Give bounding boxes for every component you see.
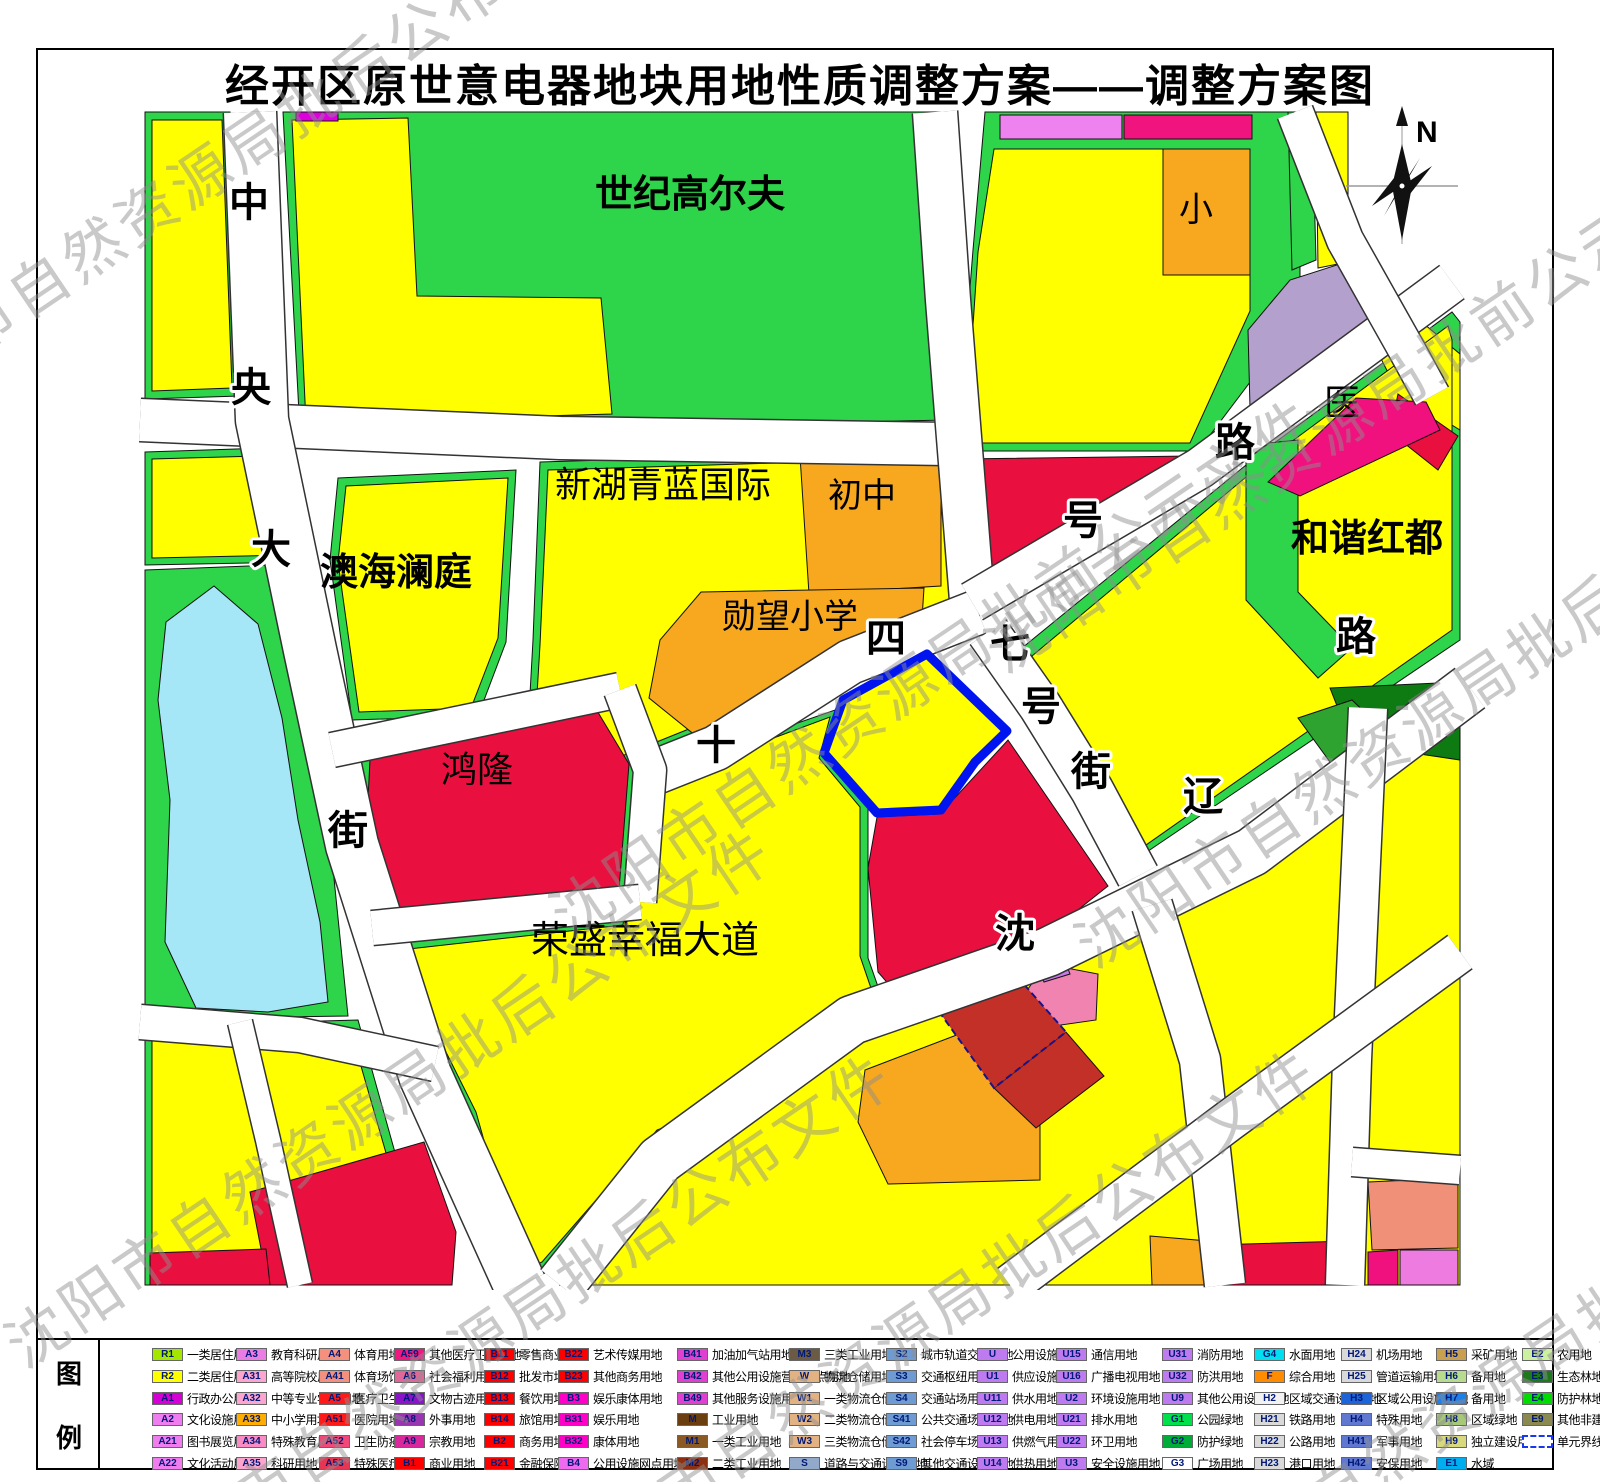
legend-grid: R1一类居住用地R2二类居住用地A1行政办公用地A2文化设施用地A21图书展览用… [102, 1340, 1554, 1468]
map-label-街: 街 [1070, 749, 1111, 794]
legend-item-B22: B22艺术传媒用地 [558, 1346, 662, 1362]
legend-label: 加油加气站用地 [712, 1346, 793, 1363]
legend-swatch-R2: R2 [152, 1370, 183, 1383]
legend-label: 三类工业用地 [824, 1346, 893, 1363]
legend-item-H8: H8区域绿地 [1436, 1411, 1517, 1427]
legend-item-E9: E9其他非建设用地 [1522, 1411, 1600, 1427]
legend-swatch-S3: S3 [886, 1370, 917, 1383]
legend-swatch-S4: S4 [886, 1392, 917, 1405]
legend-item-M2: M2二类工业用地 [677, 1455, 781, 1471]
legend-label: 消防用地 [1197, 1346, 1243, 1363]
legend-swatch-U32: U32 [1162, 1370, 1193, 1383]
legend-code: U14 [978, 1458, 1007, 1470]
legend-swatch-H7: H7 [1436, 1392, 1467, 1405]
legend-swatch-S42: S42 [886, 1435, 917, 1448]
legend-label: 娱乐用地 [593, 1411, 639, 1428]
legend-label: 一类工业用地 [712, 1433, 781, 1450]
legend-code: H7 [1437, 1393, 1466, 1405]
legend-code: M3 [790, 1349, 819, 1361]
road-br-d [1352, 1162, 1460, 1170]
legend-swatch-H24: H24 [1341, 1348, 1372, 1361]
legend-char-li: 例 [38, 1418, 100, 1455]
legend-swatch-E4: E4 [1522, 1392, 1553, 1405]
legend-swatch-R1: R1 [152, 1348, 183, 1361]
legend-code: H21 [1255, 1414, 1284, 1426]
legend-item-S4: S4交通站场用地 [886, 1390, 990, 1406]
legend-label: 特殊用地 [1376, 1411, 1422, 1428]
legend-label: 安全设施用地 [1091, 1455, 1160, 1472]
legend-swatch-H5: H5 [1436, 1348, 1467, 1361]
legend-code: U9 [1163, 1393, 1192, 1405]
legend-label: 水域 [1471, 1455, 1494, 1472]
legend-item-单元界线: 单元界线 [1522, 1433, 1600, 1449]
legend-label: 综合用地 [1289, 1368, 1335, 1385]
legend-swatch-A6: A6 [394, 1370, 425, 1383]
legend-code: E2 [1523, 1349, 1552, 1361]
legend-code: S9 [887, 1458, 916, 1470]
legend-swatch-A3: A3 [236, 1348, 267, 1361]
map-label-辽: 辽 [1183, 774, 1223, 819]
legend-swatch-U21: U21 [1056, 1413, 1087, 1426]
legend-code: B4 [559, 1458, 588, 1470]
legend-item-U14: U14供热用地 [977, 1455, 1058, 1471]
legend-item-B13: B13餐饮用地 [484, 1390, 565, 1406]
legend-label: 港口用地 [1289, 1455, 1335, 1472]
map-label-和谐红都: 和谐红都 [1291, 518, 1443, 560]
legend-code: U2 [1057, 1393, 1086, 1405]
legend-code: H22 [1255, 1436, 1284, 1448]
legend-item-B49: B49其他服务设施用地 [677, 1390, 804, 1406]
legend-swatch-H22: H22 [1254, 1435, 1285, 1448]
legend-label: 机场用地 [1376, 1346, 1422, 1363]
compass-center [1399, 183, 1405, 189]
legend-code: A7 [395, 1393, 424, 1405]
legend-code: H5 [1437, 1349, 1466, 1361]
legend-swatch-A5: A5 [319, 1392, 350, 1405]
legend-label: 单元界线 [1557, 1433, 1600, 1450]
legend-code: B1 [395, 1458, 424, 1470]
legend-code: U11 [978, 1393, 1007, 1405]
legend-swatch-H3: H3 [1341, 1392, 1372, 1405]
legend-label: 艺术传媒用地 [593, 1346, 662, 1363]
legend-swatch-U14: U14 [977, 1457, 1008, 1470]
legend-code: G1 [1163, 1414, 1192, 1426]
legend-label: 环境设施用地 [1091, 1390, 1160, 1407]
parcel-middle-school [800, 452, 941, 594]
map-label-路: 路 [1336, 614, 1377, 659]
legend-label: 水面用地 [1289, 1346, 1335, 1363]
legend-code: S41 [887, 1414, 916, 1426]
legend-code: B32 [559, 1436, 588, 1448]
legend-swatch-S: S [789, 1457, 820, 1470]
parcel-topleft [152, 120, 232, 391]
legend-item-A35: A35科研用地 [236, 1455, 317, 1471]
legend-code: A9 [395, 1436, 424, 1448]
legend-label: 铁路用地 [1289, 1411, 1335, 1428]
legend-swatch-H21: H21 [1254, 1413, 1285, 1426]
map-label-七: 七 [990, 622, 1030, 667]
legend-item-H24: H24机场用地 [1341, 1346, 1422, 1362]
legend-code: A22 [153, 1458, 182, 1470]
legend-label: 广场用地 [1197, 1455, 1243, 1472]
legend-swatch-H23: H23 [1254, 1457, 1285, 1470]
legend-item-A9: A9宗教用地 [394, 1433, 475, 1449]
legend-swatch-S41: S41 [886, 1413, 917, 1426]
legend-swatch-A4: A4 [319, 1348, 350, 1361]
legend-code: B12 [485, 1371, 514, 1383]
legend-item-H41: H41军事用地 [1341, 1433, 1422, 1449]
legend-code: A34 [237, 1436, 266, 1448]
legend-code: R1 [153, 1349, 182, 1361]
legend-swatch-B11: B11 [484, 1348, 515, 1361]
legend-swatch-A2: A2 [152, 1413, 183, 1426]
legend-item-A4: A4体育用地 [319, 1346, 400, 1362]
legend-code: B42 [678, 1371, 707, 1383]
legend-code: A31 [237, 1371, 266, 1383]
map-label-大: 大 [251, 527, 291, 572]
legend-swatch-B32: B32 [558, 1435, 589, 1448]
legend-swatch-B12: B12 [484, 1370, 515, 1383]
legend-label: 工业用地 [712, 1411, 758, 1428]
legend-code: R2 [153, 1371, 182, 1383]
parcel-red-bl2 [150, 1249, 270, 1285]
legend-swatch-S2: S2 [886, 1348, 917, 1361]
legend-swatch-W1: W1 [789, 1392, 820, 1405]
legend-code: B41 [678, 1349, 707, 1361]
legend-label: 公路用地 [1289, 1433, 1335, 1450]
legend-label: 娱乐康体用地 [593, 1390, 662, 1407]
legend-item-H23: H23港口用地 [1254, 1455, 1335, 1471]
legend-label: 防洪用地 [1197, 1368, 1243, 1385]
legend-code: U12 [978, 1414, 1007, 1426]
legend-code: U15 [1057, 1349, 1086, 1361]
plan-page: 经开区原世意电器地块用地性质调整方案——调整方案图 N 世纪高尔夫新湖青蓝国际初… [0, 0, 1600, 1482]
legend-code: B49 [678, 1393, 707, 1405]
legend-swatch-A52: A52 [319, 1435, 350, 1448]
legend-item-A8: A8外事用地 [394, 1411, 475, 1427]
legend-code: W1 [790, 1393, 819, 1405]
legend-item-H5: H5采矿用地 [1436, 1346, 1517, 1362]
legend-code: S3 [887, 1371, 916, 1383]
legend-item-S3: S3交通枢纽用地 [886, 1368, 990, 1384]
legend-label: 备用地 [1471, 1390, 1506, 1407]
legend-swatch-B1: B1 [394, 1457, 425, 1470]
legend-code: S [790, 1458, 819, 1470]
legend-label: 备用地 [1471, 1368, 1506, 1385]
legend-swatch-M: M [677, 1413, 708, 1426]
legend-code: H41 [1342, 1436, 1371, 1448]
legend-code: S2 [887, 1349, 916, 1361]
map-label-号: 号 [1021, 684, 1061, 729]
legend-code: A2 [153, 1414, 182, 1426]
legend-code: A53 [320, 1458, 349, 1470]
legend-code: W2 [790, 1414, 819, 1426]
legend-item-G4: G4水面用地 [1254, 1346, 1335, 1362]
legend-label: 安保用地 [1376, 1455, 1422, 1472]
legend-label: 广播电视用地 [1091, 1368, 1160, 1385]
legend-label: 二类工业用地 [712, 1455, 781, 1472]
map-label-初中: 初中 [828, 477, 896, 515]
map-label-路: 路 [1215, 420, 1256, 465]
legend-swatch-W3: W3 [789, 1435, 820, 1448]
legend-item-U15: U15通信用地 [1056, 1346, 1137, 1362]
legend-item-E3: E3生态林地 [1522, 1368, 1600, 1384]
legend-code: U3 [1057, 1458, 1086, 1470]
legend-swatch-M1: M1 [677, 1435, 708, 1448]
legend-swatch-H8: H8 [1436, 1413, 1467, 1426]
legend-item-B32: B32康体用地 [558, 1433, 639, 1449]
legend-item-E1: E1水域 [1436, 1455, 1494, 1471]
legend-code: A51 [320, 1414, 349, 1426]
legend-item-U2: U2环境设施用地 [1056, 1390, 1160, 1406]
parcel-salmon [1368, 1178, 1458, 1250]
legend-code: G3 [1163, 1458, 1192, 1470]
map-label-荣盛幸福大道: 荣盛幸福大道 [531, 920, 759, 962]
map-label-四: 四 [866, 616, 906, 661]
legend-swatch-B21: B21 [484, 1457, 515, 1470]
map-label-街: 街 [327, 808, 368, 853]
legend-item-U16: U16广播电视用地 [1056, 1368, 1160, 1384]
legend-code: B13 [485, 1393, 514, 1405]
legend-code: B21 [485, 1458, 514, 1470]
legend-item-B41: B41加油加气站用地 [677, 1346, 793, 1362]
legend-label: 供电用地 [1012, 1411, 1058, 1428]
legend-code: A21 [153, 1436, 182, 1448]
legend-item-M3: M3三类工业用地 [789, 1346, 893, 1362]
legend-swatch-U11: U11 [977, 1392, 1008, 1405]
north-label: N [1416, 116, 1438, 149]
legend-swatch-A8: A8 [394, 1413, 425, 1426]
legend-label: 供水用地 [1012, 1390, 1058, 1407]
legend-swatch-U13: U13 [977, 1435, 1008, 1448]
legend-swatch-A53: A53 [319, 1457, 350, 1470]
legend-code: M1 [678, 1436, 707, 1448]
legend-swatch-U16: U16 [1056, 1370, 1087, 1383]
legend-swatch-G2: G2 [1162, 1435, 1193, 1448]
legend-swatch-A21: A21 [152, 1435, 183, 1448]
legend-code: H6 [1437, 1371, 1466, 1383]
legend-code: B3 [559, 1393, 588, 1405]
legend-swatch-U9: U9 [1162, 1392, 1193, 1405]
map-label-沈: 沈 [995, 911, 1035, 956]
legend-code: A35 [237, 1458, 266, 1470]
legend-swatch-B2: B2 [484, 1435, 515, 1448]
legend-code: A5 [320, 1393, 349, 1405]
map-label-鸿隆: 鸿隆 [441, 750, 513, 790]
legend-swatch-E1: E1 [1436, 1457, 1467, 1470]
legend-code: A8 [395, 1414, 424, 1426]
legend-item-H4: H4特殊用地 [1341, 1411, 1422, 1427]
legend-label: 通信用地 [1091, 1346, 1137, 1363]
legend-swatch-B14: B14 [484, 1413, 515, 1426]
legend-label: 宗教用地 [429, 1433, 475, 1450]
legend-code: B23 [559, 1371, 588, 1383]
legend-swatch-B13: B13 [484, 1392, 515, 1405]
legend-label: 科研用地 [271, 1455, 317, 1472]
legend-swatch-B42: B42 [677, 1370, 708, 1383]
legend-code: S42 [887, 1436, 916, 1448]
legend-code: E9 [1523, 1414, 1552, 1426]
legend-swatch-U12: U12 [977, 1413, 1008, 1426]
legend-swatch-E2: E2 [1522, 1348, 1553, 1361]
legend-item-G1: G1公园绿地 [1162, 1411, 1243, 1427]
legend-swatch-W2: W2 [789, 1413, 820, 1426]
legend-side-label: 图 例 [38, 1340, 100, 1468]
strip-violet [1000, 115, 1122, 139]
legend-item-B23: B23其他商务用地 [558, 1368, 662, 1384]
legend-label: 物流仓储用地 [824, 1368, 893, 1385]
legend-code: B31 [559, 1414, 588, 1426]
legend-code: E4 [1523, 1393, 1552, 1405]
legend-label: 区域绿地 [1471, 1411, 1517, 1428]
legend-item-A6: A6社会福利用地 [394, 1368, 498, 1384]
legend-swatch-B23: B23 [558, 1370, 589, 1383]
legend-label: 排水用地 [1091, 1411, 1137, 1428]
page-title: 经开区原世意电器地块用地性质调整方案——调整方案图 [0, 50, 1600, 114]
legend-code: U22 [1057, 1436, 1086, 1448]
legend-code: G2 [1163, 1436, 1192, 1448]
parcel-aohai [338, 478, 508, 712]
legend-code: H23 [1255, 1458, 1284, 1470]
map-label-医: 医 [1324, 383, 1360, 423]
legend-label: 商业用地 [429, 1455, 475, 1472]
legend-item-W: W物流仓储用地 [789, 1368, 893, 1384]
legend-item-G2: G2防护绿地 [1162, 1433, 1243, 1449]
map-label-央: 央 [231, 365, 272, 410]
legend-code: A32 [237, 1393, 266, 1405]
legend-code: A59 [395, 1349, 424, 1361]
legend-code: H42 [1342, 1458, 1371, 1470]
map-label-号: 号 [1063, 498, 1103, 543]
legend-code: H2 [1255, 1393, 1284, 1405]
legend-code: A33 [237, 1414, 266, 1426]
legend-swatch-F: F [1254, 1370, 1285, 1383]
legend-code: U31 [1163, 1349, 1192, 1361]
legend-label: 军事用地 [1376, 1433, 1422, 1450]
legend-label: 生态林地 [1557, 1368, 1600, 1385]
legend-swatch-M2: M2 [677, 1457, 708, 1470]
legend-swatch-G4: G4 [1254, 1348, 1285, 1361]
legend-swatch-E3: E3 [1522, 1370, 1553, 1383]
legend-item-H22: H22公路用地 [1254, 1433, 1335, 1449]
legend-swatch-A33: A33 [236, 1413, 267, 1426]
legend-swatch-U1: U1 [977, 1370, 1008, 1383]
legend-code: U [978, 1349, 1007, 1361]
map-label-小: 小 [1179, 192, 1213, 229]
legend-item-U31: U31消防用地 [1162, 1346, 1243, 1362]
legend-code: B22 [559, 1349, 588, 1361]
legend-item-B4: B4公用设施网点用地 [558, 1455, 685, 1471]
legend-swatch-E9: E9 [1522, 1413, 1553, 1426]
legend-code: W3 [790, 1436, 819, 1448]
legend-swatch-U: U [977, 1348, 1008, 1361]
legend-swatch-S9: S9 [886, 1457, 917, 1470]
legend-swatch-A22: A22 [152, 1457, 183, 1470]
legend-item-E2: E2农用地 [1522, 1346, 1592, 1362]
legend-item-U22: U22环卫用地 [1056, 1433, 1137, 1449]
legend-code: A41 [320, 1371, 349, 1383]
legend-swatch-H2: H2 [1254, 1392, 1285, 1405]
legend-code: S4 [887, 1393, 916, 1405]
legend-item-B1: B1商业用地 [394, 1455, 475, 1471]
legend-code: G4 [1255, 1349, 1284, 1361]
legend-swatch-A9: A9 [394, 1435, 425, 1448]
legend-swatch-A34: A34 [236, 1435, 267, 1448]
legend-item-H42: H42安保用地 [1341, 1455, 1422, 1471]
legend-label: 公园绿地 [1197, 1411, 1243, 1428]
legend-label: 其他商务用地 [593, 1368, 662, 1385]
legend-code: A52 [320, 1436, 349, 1448]
legend-swatch-单元界线 [1522, 1435, 1553, 1448]
legend-swatch-G1: G1 [1162, 1413, 1193, 1426]
legend-item-H25: H25管道运输用地 [1341, 1368, 1445, 1384]
legend-swatch-A35: A35 [236, 1457, 267, 1470]
legend-code: W [790, 1371, 819, 1383]
legend-item-H6: H6备用地 [1436, 1368, 1506, 1384]
legend-code: E3 [1523, 1371, 1552, 1383]
legend-item-G3: G3广场用地 [1162, 1455, 1243, 1471]
north-arrow: N [1346, 106, 1458, 244]
legend-swatch-U2: U2 [1056, 1392, 1087, 1405]
legend-swatch-B41: B41 [677, 1348, 708, 1361]
parcel-orchid-b [1400, 1250, 1458, 1285]
legend-label: 公用设施网点用地 [593, 1455, 685, 1472]
legend-swatch-A7: A7 [394, 1392, 425, 1405]
legend-item-A7: A7文物古迹用地 [394, 1390, 498, 1406]
legend-swatch-A1: A1 [152, 1392, 183, 1405]
legend-swatch-U31: U31 [1162, 1348, 1193, 1361]
map-label-新湖青蓝国际: 新湖青蓝国际 [555, 465, 771, 505]
legend-item-U3: U3安全设施用地 [1056, 1455, 1160, 1471]
legend-code: F [1255, 1371, 1284, 1383]
legend-item-U32: U32防洪用地 [1162, 1368, 1243, 1384]
legend-item-E4: E4防护林地 [1522, 1390, 1600, 1406]
legend-code: E1 [1437, 1458, 1466, 1470]
legend-item-U11: U11供水用地 [977, 1390, 1058, 1406]
legend-swatch-A59: A59 [394, 1348, 425, 1361]
legend-swatch-U3: U3 [1056, 1457, 1087, 1470]
legend-code: M [678, 1414, 707, 1426]
legend-swatch-U22: U22 [1056, 1435, 1087, 1448]
legend-label: 环卫用地 [1091, 1433, 1137, 1450]
legend-code: A3 [237, 1349, 266, 1361]
legend-swatch-H9: H9 [1436, 1435, 1467, 1448]
map-label-澳海澜庭: 澳海澜庭 [320, 551, 472, 594]
legend-swatch-A41: A41 [319, 1370, 350, 1383]
legend-swatch-M3: M3 [789, 1348, 820, 1361]
legend-item-A33: A33中小学用地 [236, 1411, 329, 1427]
legend-code: U1 [978, 1371, 1007, 1383]
legend-code: H9 [1437, 1436, 1466, 1448]
legend-code: H8 [1437, 1414, 1466, 1426]
legend-item-F: F综合用地 [1254, 1368, 1335, 1384]
legend-swatch-A31: A31 [236, 1370, 267, 1383]
legend-item-U21: U21排水用地 [1056, 1411, 1137, 1427]
legend-code: U21 [1057, 1414, 1086, 1426]
legend-item-H7: H7备用地 [1436, 1390, 1506, 1406]
legend-swatch-G3: G3 [1162, 1457, 1193, 1470]
legend-code: A1 [153, 1393, 182, 1405]
legend-item-H21: H21铁路用地 [1254, 1411, 1335, 1427]
legend-swatch-H41: H41 [1341, 1435, 1372, 1448]
legend-swatch-A51: A51 [319, 1413, 350, 1426]
parcel-deeppink-b [1368, 1250, 1398, 1285]
map-label-中: 中 [229, 180, 269, 225]
legend-label: 防护绿地 [1197, 1433, 1243, 1450]
legend-panel: 图 例 R1一类居住用地R2二类居住用地A1行政办公用地A2文化设施用地A21图… [38, 1338, 1554, 1468]
legend-code: B11 [485, 1349, 514, 1361]
legend-item-B14: B14旅馆用地 [484, 1411, 565, 1427]
